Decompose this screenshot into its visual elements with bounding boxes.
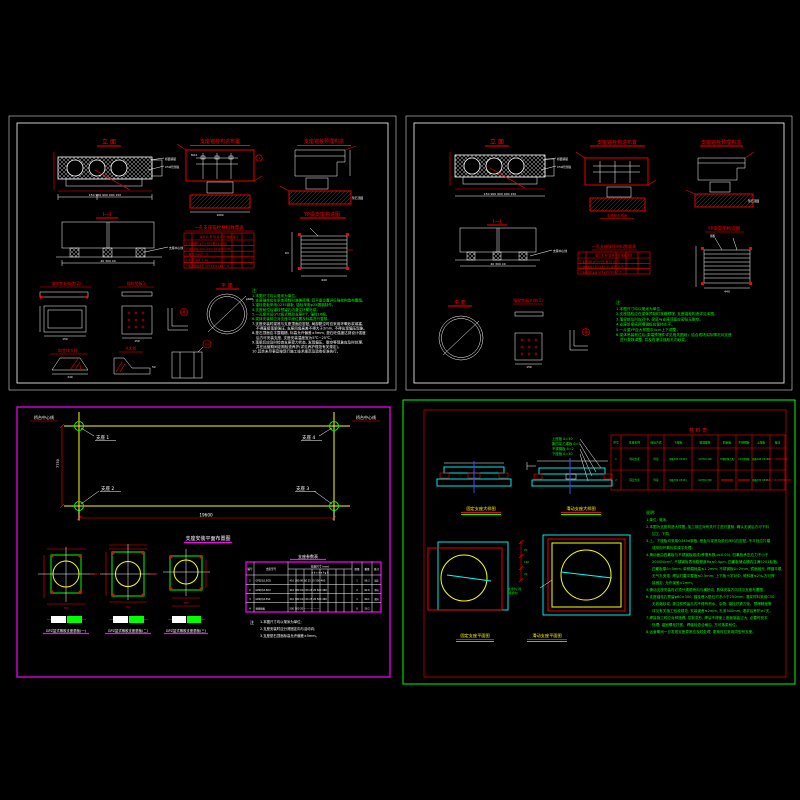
cell: 92.6 bbox=[364, 589, 370, 592]
header-cell: 四氟板 bbox=[723, 441, 732, 445]
cell: 1 bbox=[356, 580, 358, 583]
p3-col-no: 编号 bbox=[247, 567, 253, 571]
note-line: 1.本图尺寸均以毫米为单位; bbox=[260, 619, 302, 624]
note-line: 2.支座锚栓应在梁体预制时准确预埋, 支座锚栓构造详见本图。 bbox=[616, 311, 718, 316]
header-cell: 备注 bbox=[775, 441, 781, 445]
p3-pad-dim: 700 bbox=[126, 605, 131, 609]
p3-sub-headers: a b c d e f g h bbox=[311, 571, 329, 575]
p1-wedge-title: 斜垫块大样 bbox=[58, 347, 78, 353]
note-line: 处理; 锚固螺栓拧紧、焊缝检查合格后, 方可落梁就位。 bbox=[652, 622, 739, 627]
p1-elevation-view: 立 面 150 900 900 900 150 桥面铺装 C50砼封锚 bbox=[54, 138, 179, 200]
legend-item: 不锈钢板 δ=2 bbox=[552, 446, 574, 451]
cell: δ2不锈钢板 bbox=[738, 457, 750, 461]
p1-pad1-dim: 150 bbox=[134, 339, 140, 343]
p3-bar2-steel bbox=[113, 616, 128, 623]
p3-pad-detail-1: GPZ盆式橡胶支座垫板(一) 700 bbox=[38, 547, 99, 634]
p2-section-dims: 40 300 40 bbox=[490, 262, 505, 266]
p1-material-table: 一孔支座锚栓材料数量表 编号 名 称 规 格 单位 数量 备注 1 支座锚栓 φ… bbox=[184, 224, 254, 268]
p2-deck-label: 桥面铺装 bbox=[557, 157, 568, 161]
cell: GPZ(Ⅱ)2.5GD bbox=[256, 580, 272, 583]
p3-pad-label: GPZ盆式橡胶支座垫板(二) bbox=[108, 628, 149, 633]
note-line: 6.梁体安装前应对支座平面位置及标高进行复核。 bbox=[252, 316, 331, 321]
p1-anchor-layout-right: 支座锚栓预埋构造 垫石顶面 bbox=[280, 138, 363, 204]
p1-table-title: 一孔支座锚栓材料数量表 bbox=[194, 224, 244, 231]
note-line: 接固定, 允许误差±2mm。 bbox=[652, 580, 695, 585]
p3-bar2-rubber bbox=[129, 616, 144, 623]
note-line: 10.其余未尽事宜按现行施工技术规范及验收标准执行。 bbox=[252, 349, 340, 354]
p1-notes: 注: 1.本图尺寸均以毫米为单位。 2.支座锚栓应在梁体预制时准确预埋, 其平面… bbox=[252, 287, 367, 354]
p1-plan-view: 平 面 φ600 bbox=[207, 283, 253, 334]
note-line: 并在运营期间定期检查养护(详见养护规范有关规定)。 bbox=[256, 344, 341, 349]
p2-anchor-layout-left: 支座锚栓构造布置 支座垫石构造 bbox=[576, 139, 656, 219]
note-line: 详见有关施工验收规范, 安装误差≤2mm, 孔深300mm, 灌浆后养护≥7天。 bbox=[652, 608, 773, 613]
p4-fixed-plan: 固定支座平面图 bbox=[428, 542, 508, 642]
p4-center-note2: (顺桥向) bbox=[508, 591, 518, 595]
p3-layout-plan: 桥台中心线 桥台中心线 支座 1 支座 4 支座 2 支座 3 7750 196… bbox=[30, 412, 380, 521]
p2-pedestal-top-label: 垫石顶面 bbox=[748, 199, 759, 203]
note-line: 进行复核调整, 并及时灌注锚栓孔内砂浆。 bbox=[620, 337, 689, 342]
header-cell: 锚固螺栓 bbox=[699, 441, 710, 445]
note-line: 7.支座安装时梁底与支座顶面应密贴, 局部脱空时应采用环氧砂浆填塞, bbox=[252, 321, 363, 326]
cell: 1 bbox=[615, 457, 617, 461]
p1-pad2-detail: 锚栓垫板构造(2) 150 bbox=[40, 280, 92, 341]
p3-notes-label: 注 bbox=[250, 619, 254, 625]
p1-anchor-right-title: 支座锚栓预埋构造 bbox=[304, 138, 344, 145]
p3-notes: 注 1.本图尺寸均以毫米为单位; 2.支座安装时应分清固定向与活动向; 3.支座… bbox=[250, 619, 319, 638]
p1-pedestal-top-label: 垫石顶面 bbox=[352, 196, 363, 200]
p2-material-table: 一孔支座锚栓材料数量表 编号 名 称 规 格 单位 数量 备注 1 支座锚栓 φ… bbox=[578, 243, 650, 274]
p1-pad1-detail: 锚栓垫板1 150 bbox=[118, 280, 154, 343]
p4-table-title: 材 料 表 bbox=[689, 427, 707, 434]
cell: 钢板δ30 Q345d bbox=[669, 457, 687, 461]
cell: 固定支座 bbox=[629, 478, 640, 482]
cell: 2 bbox=[356, 589, 358, 592]
legend-item: 聚四氟乙烯板 δ=5 bbox=[552, 441, 581, 446]
p4-fixed-elevation: 固定支座大样图 bbox=[437, 461, 511, 515]
note-line: 1.本图尺寸均以毫米为单位。 bbox=[616, 306, 664, 311]
p3-centerline-left-label: 桥台中心线 bbox=[34, 414, 54, 420]
p3-pad-dim: 580 bbox=[184, 601, 189, 605]
table-row: 2 锚栓垫板 150×150×10 块 8 Q235 bbox=[186, 247, 231, 251]
p4-sliding-elevation: 上座板 δ=30 聚四氟乙烯板 δ=5 不锈钢板 δ=2 下座板 δ=30 滑动… bbox=[527, 436, 612, 515]
note-line: 5.一孔梁共设GYZ板式橡胶支座8个, 锚栓16根。 bbox=[252, 311, 329, 316]
p2-notes: 注: 1.本图尺寸均以毫米为单位。 2.支座锚栓应在梁体预制时准确预埋, 支座锚… bbox=[616, 299, 732, 342]
p4-sliding-plan-title: 滑动支座平面图 bbox=[532, 632, 561, 639]
p1-anchor-layout-left: 支座锚栓构造布置 M24 1000 1 bbox=[177, 138, 262, 217]
note-line: 2000N/cm², 不锈钢板表面粗糙度Ra≤0.4μm, 四氟板储油槽内注满5… bbox=[652, 559, 780, 564]
p1-c50-label: C50砼封锚 bbox=[165, 165, 179, 169]
cell: 86.3 bbox=[364, 580, 370, 583]
p3-pad-dim: 700 bbox=[64, 606, 69, 610]
p1-yp-bearing-view: YP梁支座构造图 440 63 bbox=[285, 211, 353, 282]
p1-pad1-bolt-grid bbox=[128, 312, 145, 329]
p3-span-dim: 19600 bbox=[199, 513, 213, 518]
p3-col-remark: 备注 bbox=[374, 567, 380, 571]
p4-sliding-plan: 70 190 70 支座中心线 (顺桥向) 滑动支座平面图 bbox=[508, 535, 630, 642]
cell: 410 380 102 60 25 20 500 460 bbox=[290, 589, 328, 592]
note-line: 6.梁体吊装就位后(梁端预埋件详见相关图纸), 结合现场实际情况对支座 bbox=[616, 332, 732, 337]
cell: 90.1 bbox=[364, 598, 370, 601]
cell: 滑动支座 bbox=[629, 457, 640, 461]
sheet-2: 立 面 150 900 900 900 150 桥面铺装 C50砼封锚 Ⅰ—Ⅰ … bbox=[406, 116, 792, 390]
p1-center-label: 支座中心线 bbox=[169, 246, 183, 250]
note-line: 3.上、下座板均采用Q345d钢板, 座板与梁底及垫石间均应密贴, 不平处应打磨 bbox=[646, 538, 771, 543]
cell: δ5聚四氟乙烯 bbox=[720, 457, 734, 461]
p1-section-title: Ⅰ—Ⅰ bbox=[103, 212, 112, 218]
table-row: 3 板式橡胶支座 GYZ φ250×63 个 8 bbox=[580, 270, 622, 274]
p2-elevation-dims: 150 900 900 900 150 bbox=[484, 192, 517, 196]
note-line: 2.本图为支座构造大样图, 加工前应对有关尺寸进行复核, 确认无误后方可下料 bbox=[646, 524, 769, 529]
p2-pedestal-title: 支座垫石构造 bbox=[607, 213, 628, 218]
cell: GPZ(Ⅱ)2.5DX bbox=[256, 589, 272, 592]
p1-yp-title: YP梁支座构造图 bbox=[303, 211, 340, 218]
p4-notes-label: 说明: bbox=[646, 509, 655, 515]
p2-c50-label: C50砼封锚 bbox=[557, 165, 571, 169]
cell: 500 500 20 — — — — — bbox=[290, 607, 320, 610]
p2-corner-detail bbox=[570, 329, 590, 351]
bearing-label: 支座 1 bbox=[96, 434, 109, 441]
p2-pad1-dim: 150 bbox=[526, 365, 532, 369]
p1-elevation-title: 立 面 bbox=[102, 138, 116, 146]
p1-mark1: 1 bbox=[258, 157, 260, 161]
sheet-4: 固定支座大样图 上座板 δ=30 聚四氟乙烯板 δ=5 不锈钢板 δ=2 下座板… bbox=[403, 400, 795, 684]
p1-corner-detail bbox=[168, 308, 188, 330]
cell: 1 bbox=[356, 598, 358, 601]
p1-table-headers: 编号 名 称 规 格 单位 数量 备注 bbox=[200, 235, 239, 239]
p1-section-view: Ⅰ—Ⅰ 40 300 40 支座中心线 bbox=[56, 212, 183, 266]
p3-bar1-rubber bbox=[67, 616, 82, 623]
p2-elevation-view: 立 面 150 900 900 900 150 桥面铺装 C50砼封锚 bbox=[450, 138, 571, 196]
p4-slide-dim: 190 bbox=[524, 560, 529, 564]
p3-pad-label: GPZ盆式橡胶支座垫板(三) bbox=[166, 628, 207, 633]
legend-item: 上座板 δ=30 bbox=[552, 436, 572, 441]
cell: 双向 bbox=[374, 597, 378, 601]
p1-section-dims: 40 300 40 bbox=[100, 259, 115, 263]
note-line: 加工, 下同。 bbox=[652, 531, 672, 536]
note-line: 4.滑动面由四氟板与不锈钢板组成(摩擦系数μ≤0.03), 四氟板承压应力不小于 bbox=[646, 552, 769, 557]
cell: 钢板δ30 Q345d bbox=[669, 478, 687, 482]
p2-yp-title: YP梁支座构造图 bbox=[707, 225, 741, 232]
note-line: 后方可安装支座, 支座安装温度宜为5℃~25℃。 bbox=[256, 335, 334, 340]
p2-steel-label: 钢板 bbox=[710, 234, 716, 238]
table-row: 1 支座锚栓 φ25×400 根 16 Q235 bbox=[186, 241, 228, 245]
table-row: 1 支座锚栓 φ25×400 根 16 Q235 bbox=[580, 259, 620, 263]
note-line: 无收缩砂浆, 灌注前预留孔内不得有积水、杂物, 锚栓拧紧力矩、预埋精度等 bbox=[652, 601, 772, 606]
p1-yp-height-dim: 63 bbox=[285, 251, 289, 255]
legend-item: 下座板 δ=30 bbox=[552, 451, 572, 456]
cell: 焊接 bbox=[653, 478, 659, 482]
note-line: 5.滑动支座安装时必须分清顺桥向与横桥向, 具体安装方向详见支座布置图。 bbox=[646, 587, 767, 592]
cell: 39.2 bbox=[364, 607, 370, 610]
bearing-label: 支座 2 bbox=[101, 485, 114, 492]
p2-table-title: 一孔支座锚栓材料数量表 bbox=[592, 243, 636, 249]
note-line: 3.锚栓垫板采用Q235钢板, 锚栓采用φ25圆钢制作。 bbox=[252, 302, 335, 307]
table-row: 4 垫 圈 φ25 个 16 bbox=[186, 258, 208, 262]
cell: 焊接 bbox=[653, 457, 659, 461]
p4-notes: 说明: 1.单位: 毫米。 2.本图为支座构造大样图, 加工前应对有关尺寸进行复… bbox=[646, 509, 783, 634]
header-cell: 连接方式 bbox=[650, 441, 661, 445]
note-line: 2.支座锚栓应在梁体预制时准确预埋, 其平面位置详见锚栓构造布置图。 bbox=[252, 298, 366, 303]
p1-block-detail: 60 bbox=[172, 340, 211, 378]
table-row: 5 板式橡胶支座 GYZ φ250×63 个 8 bbox=[186, 264, 229, 268]
note-line: 不得直接落梁强压, 支座四角高差不得大于2mm, 不得出现偏压现象。 bbox=[256, 326, 367, 331]
p2-plan-title: 平 面 bbox=[454, 300, 466, 306]
p1-phi60-label: 60 bbox=[205, 343, 209, 347]
p3-plan-title: 支座安装平面布置图 bbox=[185, 535, 230, 542]
p1-pad2-dim: 150 bbox=[62, 337, 68, 341]
p1-anchor-base-dim: 1000 bbox=[216, 213, 223, 217]
p1-elevation-dims: 150 900 900 900 150 bbox=[89, 193, 122, 197]
cell: 固定 bbox=[374, 579, 379, 583]
p1-m24-label: M24 bbox=[191, 153, 197, 157]
cell: 4 bbox=[249, 606, 251, 610]
p2-pad1-title: 锚栓垫板大样(1) bbox=[513, 297, 543, 303]
p2-pad1-bolt-grid bbox=[521, 339, 538, 356]
note-line: 1.单位: 毫米。 bbox=[646, 517, 670, 522]
p3-col-name: 支座型号 bbox=[266, 567, 277, 571]
p3-width-dim: 7750 bbox=[56, 459, 60, 468]
note-line: 4.支座处梁底预埋钢板应保持水平。 bbox=[616, 322, 675, 327]
p1-detail-a-dim: 50 bbox=[152, 365, 156, 369]
p1-plan-title: 平 面 bbox=[221, 283, 233, 289]
cell: 4-M30×300 bbox=[698, 479, 712, 482]
p1-detail-a-title: A大样 bbox=[126, 345, 137, 351]
header-cell: 序号 bbox=[613, 441, 619, 445]
p3-col-weight: 重量 bbox=[364, 567, 370, 571]
table-row: 3 螺 母 M24 个 32 bbox=[186, 253, 209, 257]
p2-anchor-left-title: 支座锚栓构造布置 bbox=[597, 139, 637, 146]
cell: 3 bbox=[249, 597, 251, 601]
sheet-1: 立 面 150 900 900 900 150 桥面铺装 C50砼封锚 Ⅰ—Ⅰ … bbox=[9, 116, 396, 390]
p2-pad1-detail: 锚栓垫板大样(1) 150 bbox=[513, 297, 543, 369]
note-line: 1.本图尺寸均以毫米为单位。 bbox=[252, 293, 299, 298]
p3-bar3-steel bbox=[172, 616, 186, 623]
note-line: 四氟板厚δ=5mm, 单侧磨耗量≤1.2mm; 不锈钢板δ=2mm, 镜面抛光,… bbox=[652, 566, 783, 571]
p1-detail-a: A大样 50 bbox=[114, 345, 156, 374]
p4-slide-dim: 70 bbox=[524, 548, 528, 552]
p1-pad2-title: 锚栓垫板构造(2) bbox=[51, 280, 81, 286]
p2-anchor-layout-right: 支座锚栓预埋构造 垫石顶面 bbox=[686, 139, 759, 207]
header-cell: 下座板 bbox=[674, 441, 683, 445]
cell: 2 bbox=[249, 588, 251, 592]
p3-parameter-table: 支座参数表 编号 支座型号 支座尺寸(mm) a b c d e f g h 数… bbox=[246, 553, 381, 612]
cell: GPZ(Ⅱ)2.5SX bbox=[256, 598, 271, 601]
header-cell: 支座名称 bbox=[629, 441, 640, 445]
p4-fixed-plan-title: 固定支座平面图 bbox=[460, 632, 489, 639]
p4-slide-dim: 70 bbox=[524, 572, 528, 576]
p4-fixed-detail-title: 固定支座大样图 bbox=[466, 505, 495, 512]
p2-center-label: 支座中心线 bbox=[553, 249, 567, 253]
p4-sliding-detail-title: 滑动支座大样图 bbox=[566, 505, 595, 512]
sheet-3: 桥台中心线 桥台中心线 支座 1 支座 4 支座 2 支座 3 7750 196… bbox=[17, 407, 390, 677]
p1-wedge-dim: 240 bbox=[67, 375, 73, 379]
p3-bar1-steel bbox=[51, 616, 66, 623]
cell: 预埋钢板 bbox=[256, 606, 266, 610]
p3-pad-detail-2: GPZ盆式橡胶支座垫板(二) 700 bbox=[100, 544, 158, 634]
p3-header-group: 支座尺寸(mm) bbox=[311, 565, 330, 569]
p1-deck-label: 桥面铺装 bbox=[165, 157, 176, 161]
p2-plan-view: 平 面 bbox=[439, 300, 483, 360]
cell: 410 380 90 60 25 20 500 460 bbox=[290, 580, 326, 583]
p1-wedge-detail: 斜垫块大样 240 bbox=[50, 347, 88, 379]
p3-table-title: 支座参数表 bbox=[298, 553, 318, 559]
cad-canvas: 立 面 150 900 900 900 150 桥面铺装 C50砼封锚 Ⅰ—Ⅰ … bbox=[0, 0, 800, 800]
cell: 1 bbox=[249, 579, 251, 583]
bearing-label: 支座 3 bbox=[296, 485, 309, 492]
cell: 8 bbox=[356, 607, 358, 610]
p1-yp-width-dim: 440 bbox=[321, 278, 327, 282]
p2-anchor-right-title: 支座锚栓预埋构造 bbox=[701, 139, 741, 146]
p4-material-table: 材 料 表 序号 支座名称 连接方式 下座板 锚固螺栓 四氟板 不锈钢板 上座板… bbox=[611, 427, 791, 490]
p3-pad-label: GPZ盆式橡胶支座垫板(一) bbox=[46, 628, 87, 633]
note-line: 3.支座垫石顶面标高允许偏差±5mm。 bbox=[260, 633, 319, 638]
p2-yp-width-dim: 440 bbox=[724, 290, 730, 294]
cell: 单向 bbox=[374, 588, 378, 592]
header-cell: 不锈钢板 bbox=[738, 441, 749, 445]
cell: 4-M30×300 bbox=[698, 458, 712, 461]
p3-col-qty: 数量 bbox=[354, 567, 360, 571]
drawing-svg: 立 面 150 900 900 900 150 桥面铺装 C50砼封锚 Ⅰ—Ⅰ … bbox=[0, 0, 800, 800]
p1-notes-label: 注: bbox=[252, 287, 257, 293]
note-line: 8.运营期间一旦发现支座异常应及时处理, 更换时应采用同型号支座。 bbox=[646, 629, 756, 634]
p3-bar3-rubber bbox=[187, 616, 201, 623]
p4-center-note: 支座中心线 bbox=[508, 587, 521, 591]
note-line: 3.落梁就位时应对中, 梁底与支座顶面应密贴无脱空。 bbox=[616, 316, 703, 321]
p2-elevation-title: 立 面 bbox=[490, 138, 504, 146]
p3-pad-detail-3: 580 GPZ盆式橡胶支座垫板(三) bbox=[163, 549, 210, 634]
cell: 2 bbox=[615, 478, 617, 482]
p1-anchor-left-title: 支座锚栓构造布置 bbox=[200, 138, 240, 145]
p1-pad1-title: 锚栓垫板1 bbox=[127, 280, 146, 286]
header-cell: 上座板 bbox=[757, 441, 766, 445]
note-line: 无气孔夹渣, 焊后打磨平整度≤0.5mm; 上下板十字对中, 倾斜度≤2‰方可焊 bbox=[652, 573, 775, 578]
note-line: 2.支座安装时应分清固定向与活动向; bbox=[260, 626, 315, 631]
note-line: 6.支座锚栓孔预留φ60×300, 锚栓埋入垫石内不小于250mm, 灌浆材料采… bbox=[646, 594, 775, 599]
p2-section-view: Ⅰ—Ⅰ 40 300 40 支座中心线 bbox=[455, 219, 567, 266]
p2-table-headers: 编号 名 称 规 格 单位 数量 备注 bbox=[596, 254, 633, 258]
table-row: 2 锚栓垫板 150×150×10 块 8 Q235 bbox=[580, 265, 624, 269]
cell: 410 380 102 60 25 20 500 460 bbox=[290, 598, 328, 601]
note-line: 4.支座就位后锚栓预留孔内灌注环氧砂浆。 bbox=[252, 307, 320, 312]
p3-centerline-right-label: 桥台中心线 bbox=[356, 414, 376, 420]
p2-section-title: Ⅰ—Ⅰ bbox=[493, 219, 502, 225]
bearing-label: 支座 4 bbox=[302, 434, 315, 441]
note-line: 7.焊接施工时应对称施焊, 控制变形, 焊后不得使上座板翘曲过大, 必要时校平 bbox=[646, 615, 768, 620]
note-line: 或采用环氧砂浆调平处理。 bbox=[652, 545, 695, 550]
p2-notes-label: 注: bbox=[616, 299, 622, 306]
p2-yp-bearing-view: YP梁支座构造图 440 钢板 bbox=[696, 225, 752, 294]
note-line: 5.一片梁YP自大样图中4cm上下调整。 bbox=[616, 327, 680, 332]
note-line: 9.落梁后应及时检查支座受力状态, 发现偏压、脱空等现象应及时处理, bbox=[252, 339, 363, 344]
note-line: 8.垫石顶面应平整粗糙, 标高允许偏差±5mm, 垫石砼强度达到设计强度 bbox=[252, 330, 366, 335]
